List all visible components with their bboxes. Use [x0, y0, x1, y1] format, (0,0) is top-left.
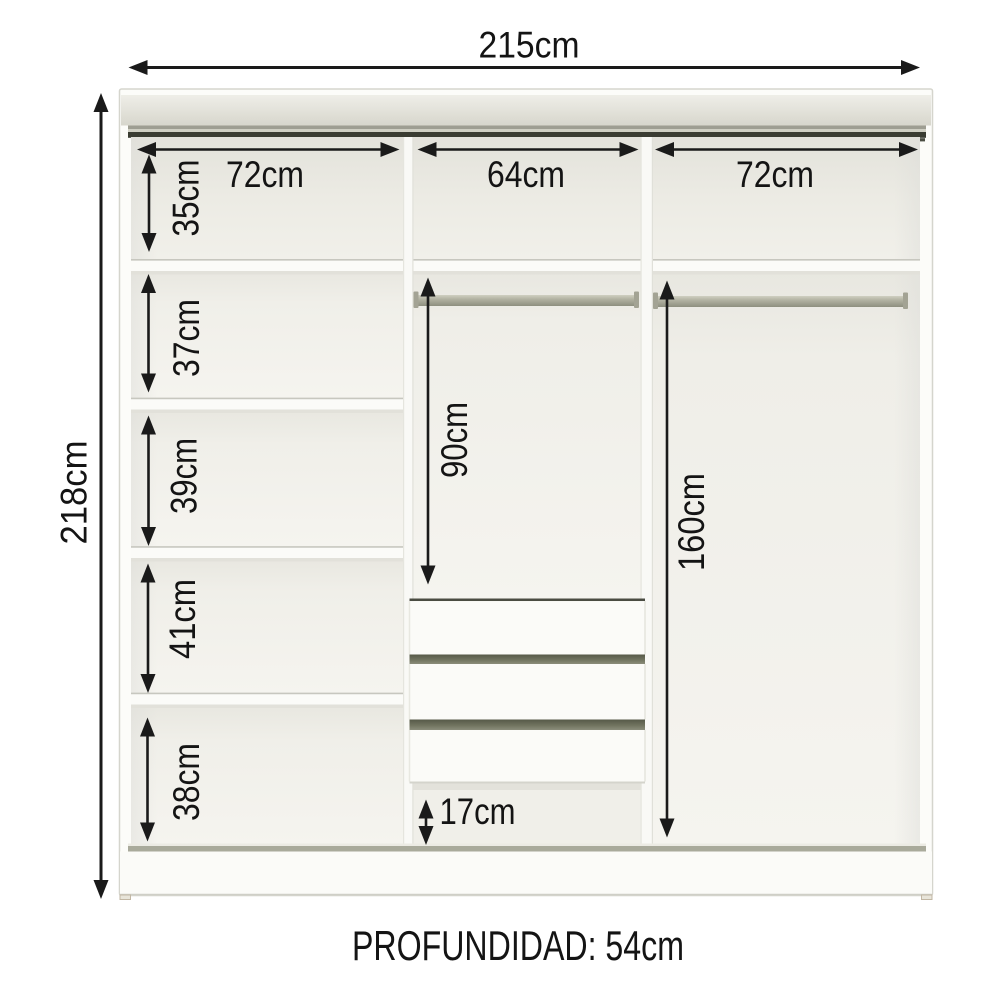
svg-text:35cm: 35cm [166, 160, 207, 237]
svg-text:38cm: 38cm [166, 743, 207, 821]
svg-text:39cm: 39cm [164, 438, 205, 514]
svg-text:72cm: 72cm [736, 154, 814, 195]
svg-text:90cm: 90cm [434, 402, 475, 478]
svg-text:41cm: 41cm [162, 579, 203, 659]
svg-text:160cm: 160cm [671, 473, 712, 571]
svg-text:218cm: 218cm [54, 441, 95, 545]
svg-text:17cm: 17cm [440, 791, 516, 832]
svg-text:PROFUNDIDAD: 54cm: PROFUNDIDAD: 54cm [352, 922, 684, 969]
svg-text:72cm: 72cm [226, 154, 304, 195]
svg-text:64cm: 64cm [487, 154, 565, 195]
svg-text:37cm: 37cm [166, 299, 207, 377]
svg-text:215cm: 215cm [479, 25, 580, 66]
